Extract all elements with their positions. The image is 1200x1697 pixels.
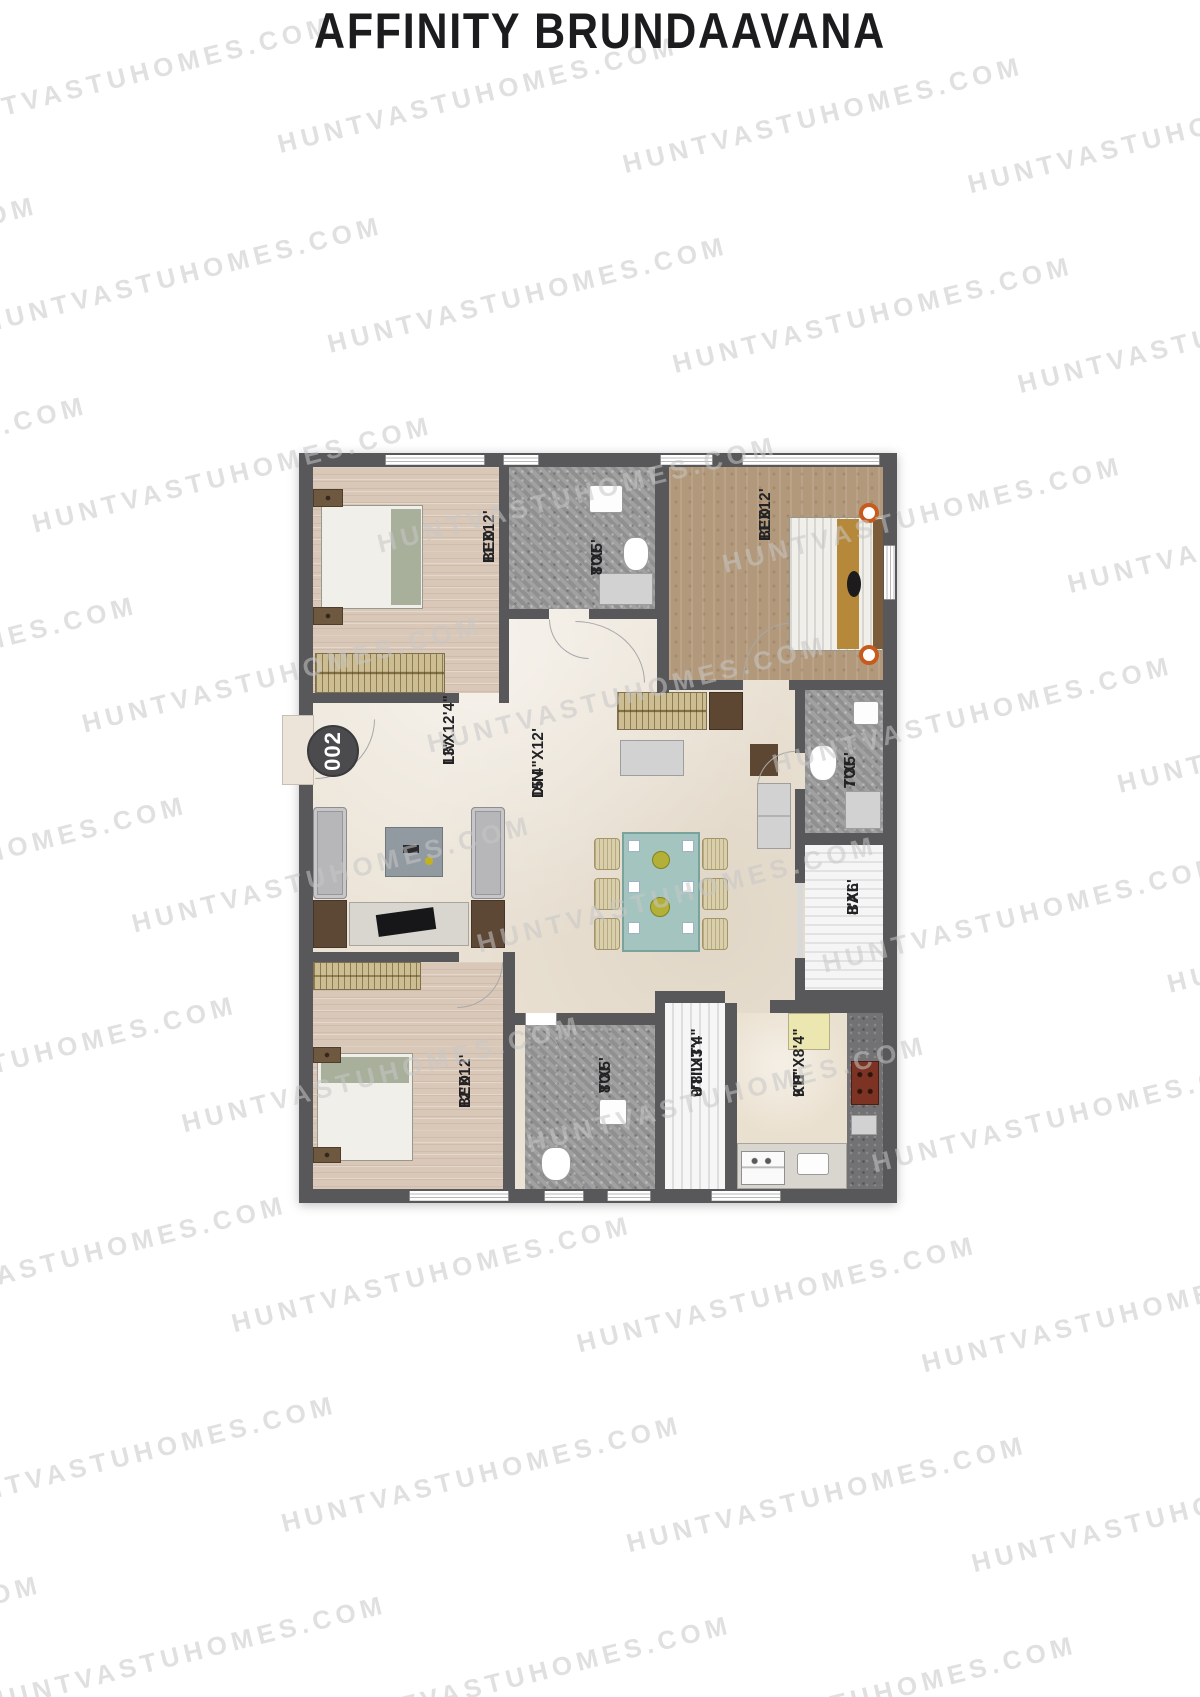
unit-number: 002 [320, 731, 346, 771]
toilet1-counter-icon [599, 573, 653, 605]
watermark-text: HUNTVASTUHOMES.COM [0, 1109, 186, 1299]
serving-plate-icon [650, 897, 670, 917]
wall [557, 1013, 655, 1025]
wall [313, 952, 459, 962]
wall [657, 467, 669, 693]
plate-icon [628, 922, 640, 934]
wall [503, 952, 515, 1203]
plate-icon [628, 881, 640, 893]
toilet1-door-arc [549, 619, 589, 659]
wall [795, 690, 805, 753]
watermark-text: HUNTVASTUHOMES.COM [1114, 610, 1200, 800]
toilet3-sink-icon [599, 1099, 627, 1125]
bed2-icon [789, 517, 883, 651]
page-title: AFFINITY BRUNDAAVANA [84, 2, 1116, 60]
wall [589, 609, 665, 619]
shaft-counter-icon [851, 1115, 877, 1135]
watermark-text: HUNTVASTUHOMES.COM [0, 1329, 581, 1519]
balcony-slider-icon [797, 883, 803, 958]
watermark-text: HUNTVASTUHOMES.COM [0, 330, 332, 520]
bed3-post-icon [313, 1147, 341, 1163]
wall [655, 991, 725, 1003]
wall [725, 1003, 737, 1203]
watermark-text: HUNTVASTUHOMES.COM [324, 170, 972, 360]
window-icon [409, 1191, 509, 1201]
bed2-post-icon [859, 645, 879, 665]
watermark-text: HUNTVASTUHOMES.COM [0, 709, 86, 899]
wall [795, 833, 897, 845]
watermark-text: HUNTVASTUHOMES.COM [669, 190, 1200, 380]
plate-icon [682, 881, 694, 893]
window-icon [544, 1191, 584, 1201]
wall [770, 1000, 897, 1013]
watermark-text: HUNTVASTUHOMES.COM [0, 1509, 286, 1697]
outer-wall-left [299, 785, 313, 1203]
watermark-text: HUNTVASTUHOMES.COM [0, 1529, 631, 1697]
watermark-text: HUNTVASTUHOMES.COM [1064, 410, 1200, 600]
window-icon [503, 455, 539, 465]
toilet2-wc-icon [809, 745, 837, 781]
wall [655, 1003, 665, 1203]
stove-icon [851, 1061, 879, 1105]
dining-chair-icon [702, 918, 728, 950]
window-icon [660, 455, 713, 465]
shoe-cabinet-icon [709, 692, 743, 730]
toilet1-wc-icon [623, 537, 649, 571]
serving-plate-icon [652, 851, 670, 869]
wall [789, 680, 897, 690]
bed2-post-icon [859, 503, 879, 523]
toilet2-sink-icon [853, 701, 879, 725]
end-table-icon [471, 900, 505, 948]
bed2-headboard-icon [873, 519, 883, 649]
bedroom2-wardrobe-icon [617, 692, 707, 730]
sofa-right-icon [471, 807, 505, 899]
bed3-post-icon [313, 1047, 341, 1063]
dining-chair-icon [594, 838, 620, 870]
watermark-text: HUNTVASTUHOMES.COM [968, 1389, 1200, 1579]
window-icon [884, 545, 895, 600]
watermark-text: HUNTVASTUHOMES.COM [1018, 1589, 1200, 1697]
balcony-floor [805, 845, 883, 990]
watermark-text: HUNTVASTUHOMES.COM [328, 1549, 976, 1697]
watermark-text: HUNTVASTUHOMES.COM [278, 1349, 926, 1539]
watermark-text: HUNTVASTUHOMES.COM [1015, 210, 1200, 400]
linen-cabinet-icon [757, 783, 791, 849]
outer-wall-bottom [299, 1189, 897, 1203]
floor-plan: 002 BED11'X12' TOI8'X5' BED11'X12' LIV13… [299, 453, 897, 1203]
page: AFFINITY BRUNDAAVANA [0, 0, 1200, 1697]
utility-floor [665, 1003, 725, 1189]
dining-chair-icon [702, 878, 728, 910]
watermark-text: HUNTVASTUHOMES.COM [0, 1309, 236, 1499]
watermark-text: HUNTVASTUHOMES.COM [0, 909, 136, 1099]
watermark-text: HUNTVASTUHOMES.COM [0, 150, 627, 340]
bed2-pillow-icon [847, 571, 861, 597]
outer-wall-left [299, 453, 313, 715]
coffee-table-decor-icon [425, 857, 433, 865]
plate-icon [682, 840, 694, 852]
window-icon [607, 1191, 651, 1201]
wall [499, 467, 509, 703]
watermark-text: HUNTVASTUHOMES.COM [919, 1190, 1200, 1380]
watermark-text: HUNTVASTUHOMES.COM [623, 1369, 1200, 1559]
kitchen-cabinet-icon [788, 1013, 830, 1050]
washing-machine-icon [741, 1151, 785, 1185]
watermark-text: HUNTVASTUHOMES.COM [0, 510, 37, 700]
toilet2-shower-icon [845, 791, 881, 829]
bed1-blanket-icon [391, 509, 421, 605]
plate-icon [628, 840, 640, 852]
wall [313, 693, 459, 703]
bedroom3-wardrobe-icon [313, 962, 421, 990]
watermark-text: HUNTVASTUHOMES.COM [1164, 810, 1200, 1000]
watermark-text: HUNTVASTUHOMES.COM [673, 1569, 1200, 1697]
wall [515, 1013, 525, 1025]
window-icon [742, 455, 880, 465]
wall [657, 680, 743, 690]
sofa-left-icon [313, 807, 347, 899]
plate-icon [682, 922, 694, 934]
wall [505, 609, 549, 619]
bedroom1-wardrobe-icon [315, 653, 445, 693]
bed1-post-icon [313, 607, 343, 625]
kitchen-sink-icon [797, 1153, 829, 1175]
room-label-liv: LIV13'X12'4" [419, 710, 463, 820]
room-label-din: DIN15'4"X12' [508, 743, 552, 853]
toilet1-sink-icon [589, 485, 623, 513]
toilet3-wc-icon [541, 1147, 571, 1181]
bed1-post-icon [313, 489, 343, 507]
end-table-icon [313, 900, 347, 948]
dining-chair-icon [702, 838, 728, 870]
dining-chair-icon [594, 918, 620, 950]
coffee-table-decor-icon [403, 845, 419, 853]
dining-chair-icon [594, 878, 620, 910]
window-icon [711, 1191, 781, 1201]
hall-bench-icon [620, 740, 684, 776]
unit-number-badge: 002 [307, 725, 359, 777]
watermark-text: HUNTVASTUHOMES.COM [869, 990, 1200, 1180]
toilet3-door-gap [525, 1013, 557, 1025]
window-icon [385, 455, 485, 465]
watermark-text: HUNTVASTUHOMES.COM [0, 130, 282, 320]
